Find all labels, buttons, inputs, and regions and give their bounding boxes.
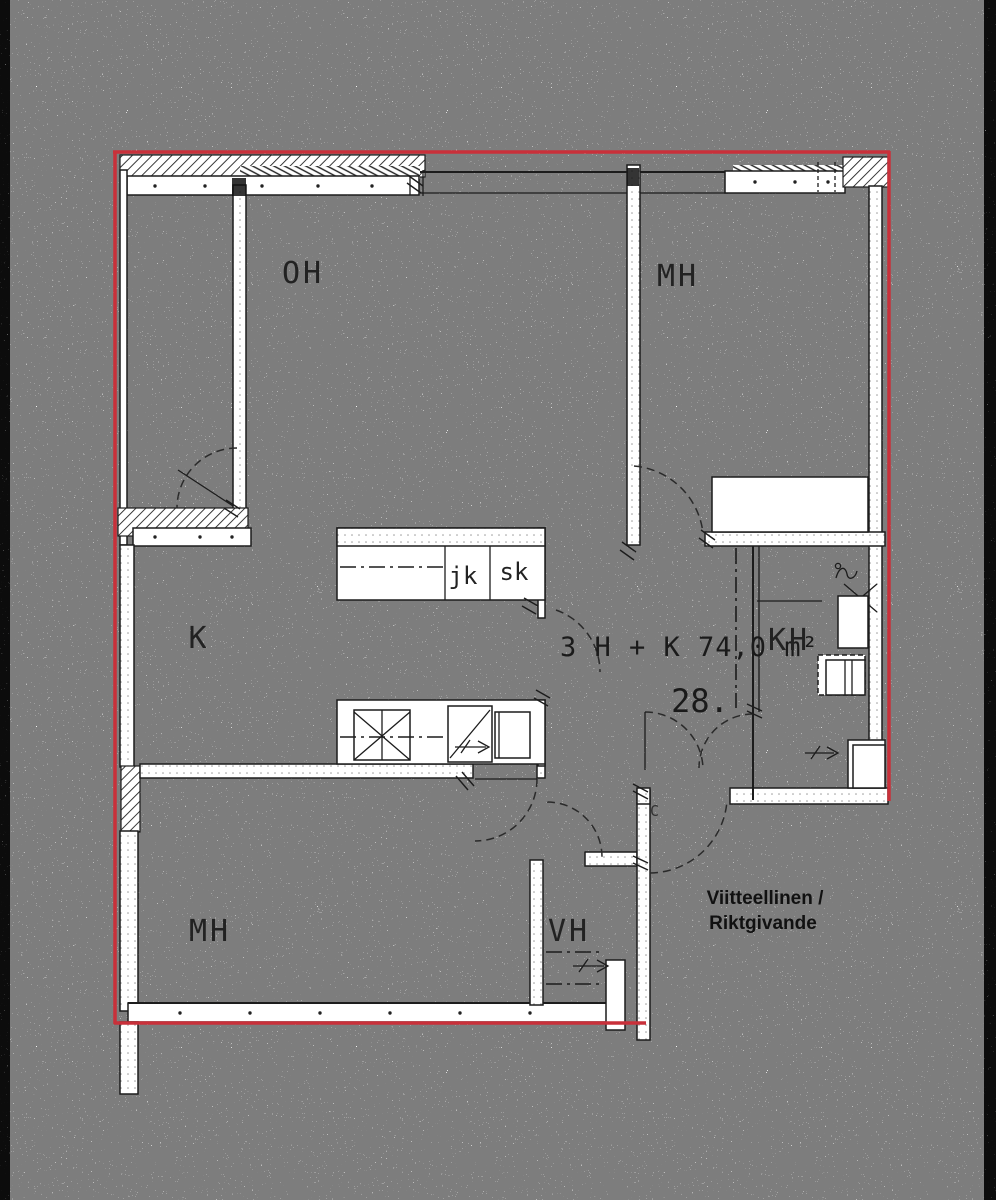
washing-machine: [838, 596, 868, 648]
room-label-bathroom: KH: [768, 623, 810, 658]
label-cupboard: sk: [500, 558, 529, 586]
floor-plan-drawing: OH MH K jk sk 3 H + K 74,0 m² 28. KH MH …: [0, 0, 996, 1200]
room-label-bedroom-bottom: MH: [189, 914, 231, 949]
kitchen-counter-edge: [337, 528, 545, 546]
kitchen-appliance: [495, 712, 530, 758]
label-fridge: jk: [449, 562, 478, 590]
bedroom-closet: [712, 477, 868, 532]
hall-bedroom-wall: [140, 764, 473, 778]
apartment-number: 28.: [671, 682, 729, 720]
floor-plan-page: OH MH K jk sk 3 H + K 74,0 m² 28. KH MH …: [0, 0, 996, 1200]
room-label-bedroom-top: MH: [657, 259, 699, 294]
balcony-left-rail: [120, 170, 127, 545]
room-label-kitchen: K: [188, 621, 209, 656]
note-line-2: Riktgivande: [709, 913, 817, 934]
bathroom-cabinet-inner: [853, 745, 885, 788]
vh-right-wall: [637, 790, 650, 1040]
balcony-window-band: [127, 176, 419, 195]
balcony-inner-wall: [233, 185, 246, 510]
top-right-hatch-wall: [843, 157, 888, 187]
bottom-window-band: [128, 1003, 620, 1022]
entry-label: C: [650, 802, 659, 820]
left-hatch-wall: [121, 766, 140, 832]
vh-top-wall: [585, 852, 637, 866]
room-label-living: OH: [282, 256, 324, 291]
right-exterior-wall: [869, 186, 882, 800]
room-label-hall-closet: VH: [548, 914, 590, 949]
vh-cabinet: [606, 960, 625, 1030]
mh-bottom-wall: [705, 532, 885, 546]
kitchen-left-wall: [120, 545, 134, 767]
wall-extension-left: [120, 1022, 138, 1094]
bedroom2-left-wall: [120, 831, 138, 1011]
bedroom-vh-divider: [530, 860, 543, 1005]
note-line-1: Viitteellinen /: [707, 888, 825, 909]
oh-mh-divider-wall: [627, 165, 640, 545]
